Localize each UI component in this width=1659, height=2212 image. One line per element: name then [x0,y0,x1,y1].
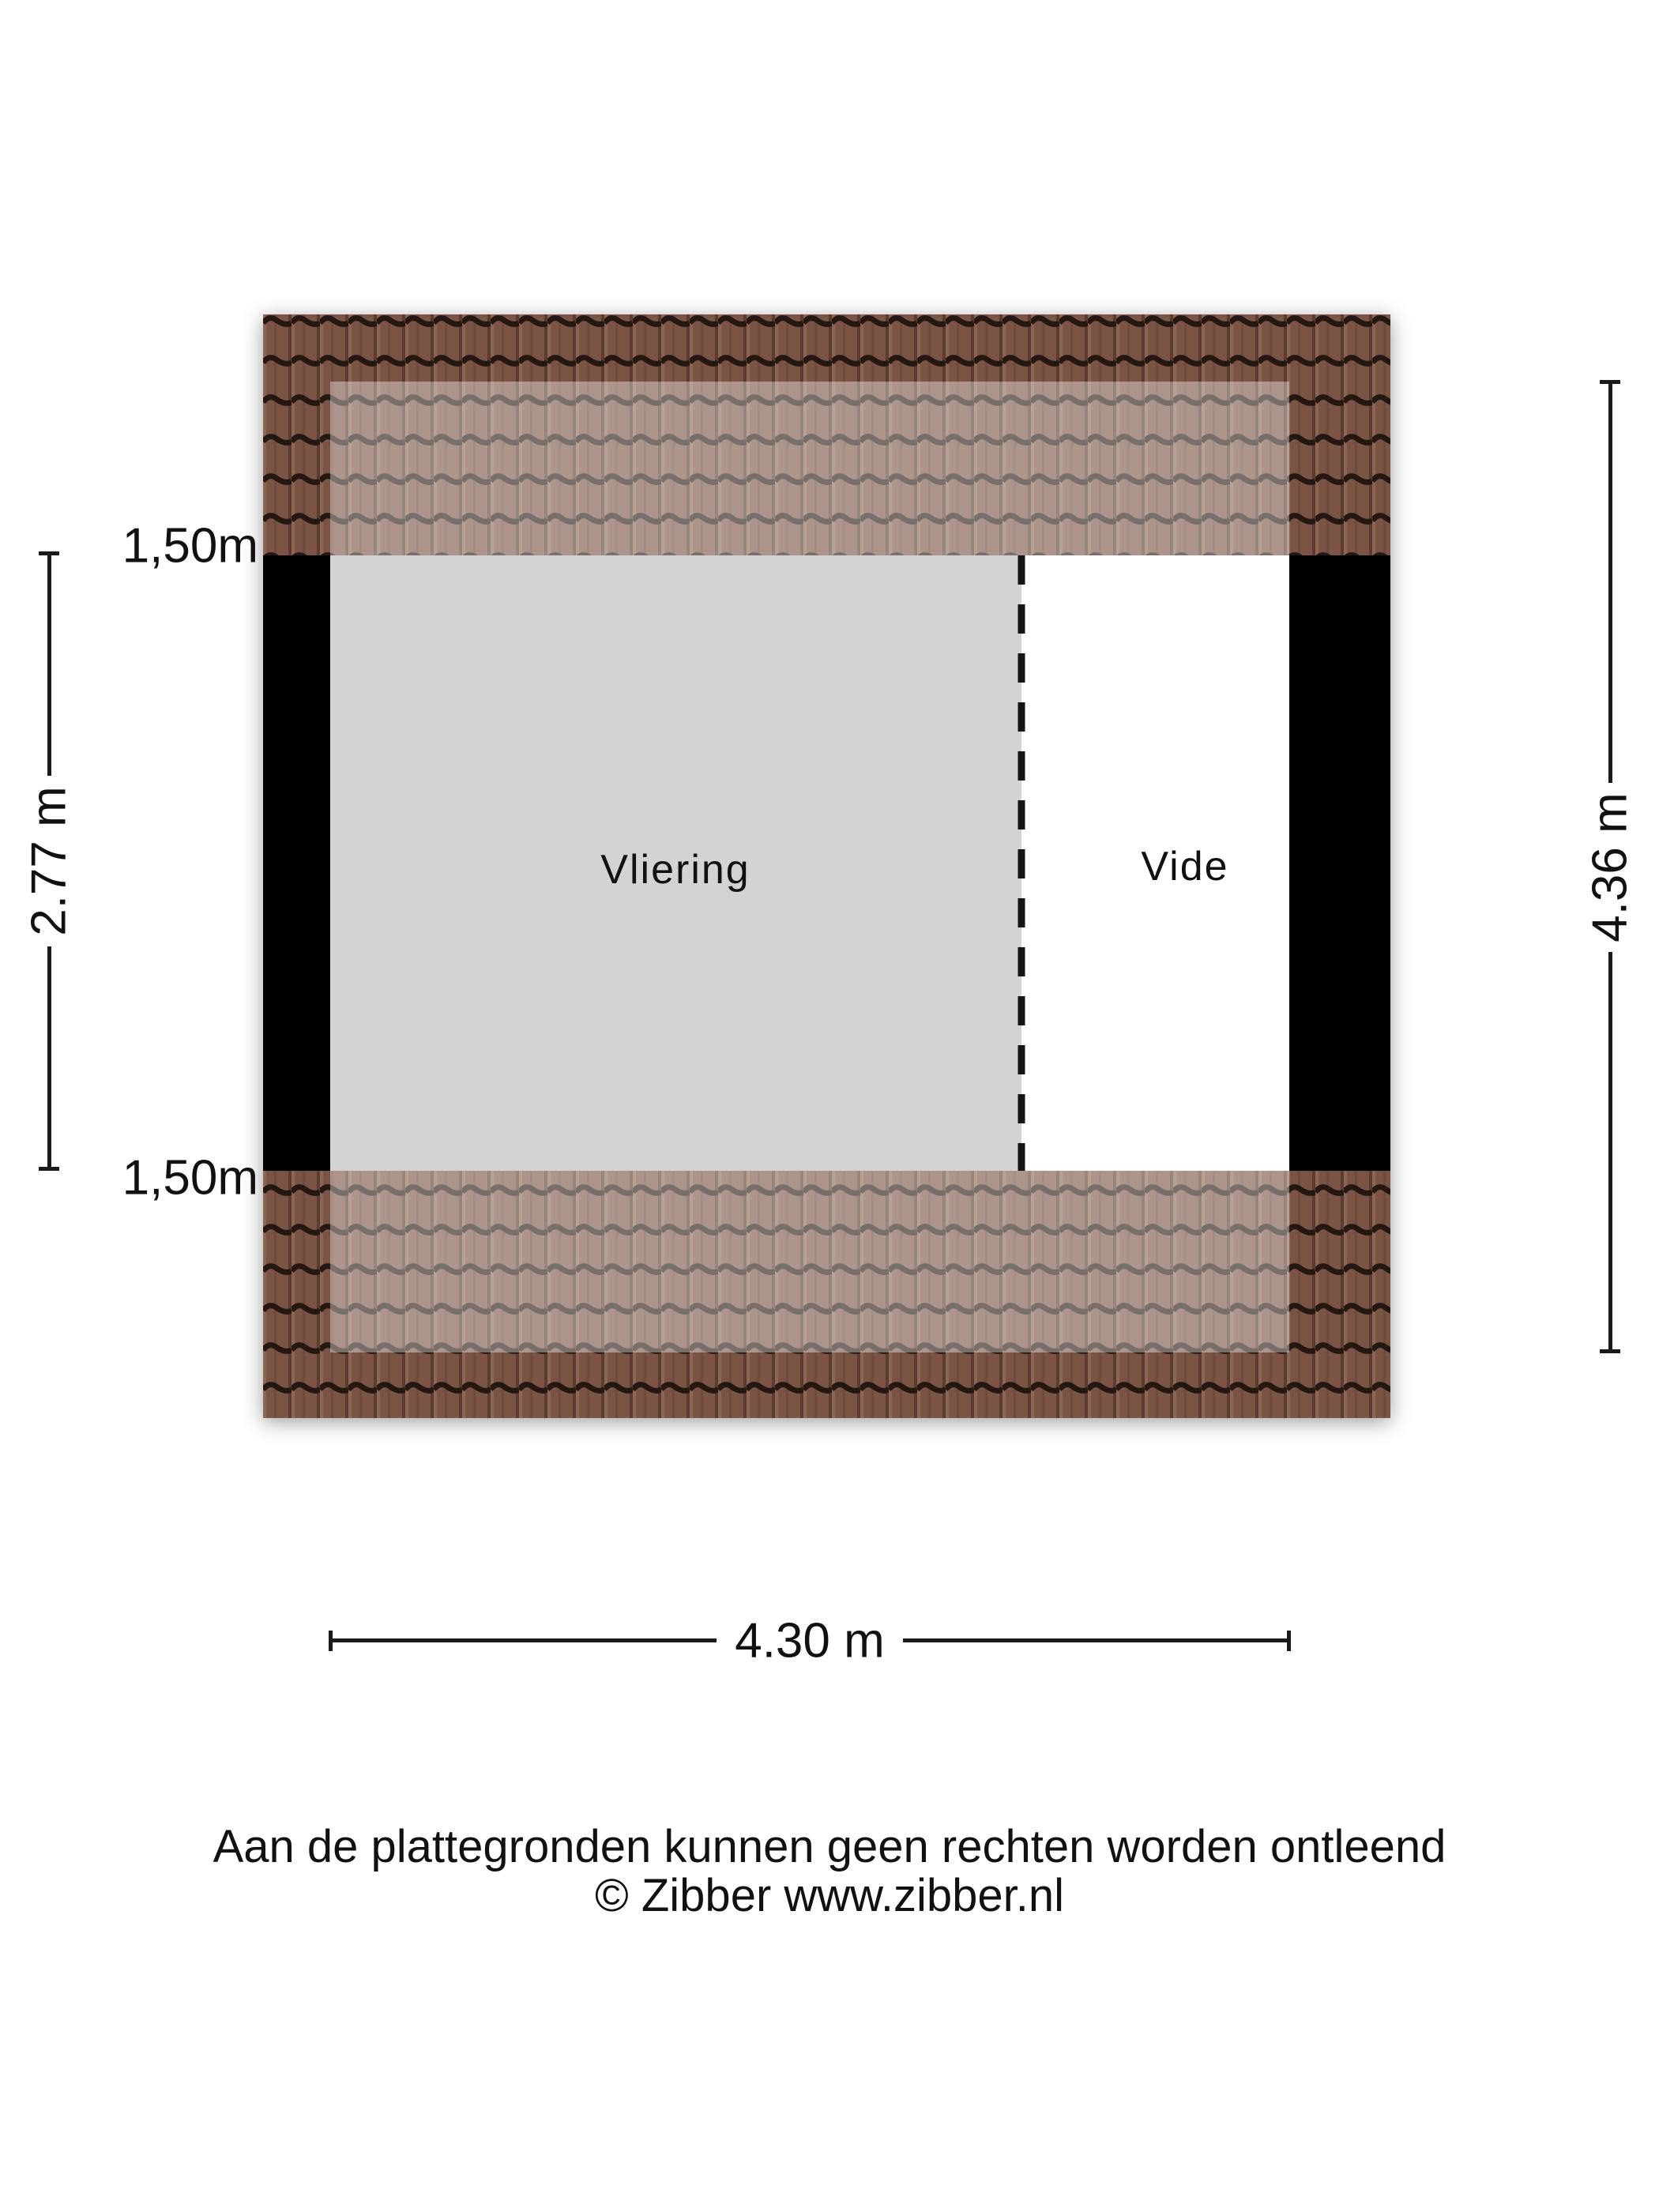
dimension-right-line-lower [1608,952,1612,1351]
room-label-vide: Vide [1141,843,1228,890]
clearance-label-top: 1,50m [122,518,258,574]
footer-copyright-line: © Zibber www.zibber.nl [0,1872,1659,1920]
dimension-bottom-tick-right [1287,1631,1291,1651]
dimension-right-tick-bottom [1600,1349,1620,1353]
wall-right [1289,555,1390,1171]
page: Vliering Vide 1,50m 1,50m 2.77 m 4.36 m … [0,0,1659,2212]
dimension-left-tick-bottom [39,1167,59,1171]
footer-disclaimer: Aan de plattegronden kunnen geen rechten… [0,1823,1659,1920]
dimension-right-label: 4.36 m [1582,792,1638,942]
dimension-bottom-line-left [331,1638,717,1642]
dimension-left-line-upper [47,555,51,776]
room-label-vliering: Vliering [600,846,750,893]
dimension-bottom-label: 4.30 m [735,1613,885,1669]
dimension-right-line-upper [1608,384,1612,783]
wall-left [263,555,330,1171]
dimension-left-line-lower [47,946,51,1169]
dimension-left-label: 2.77 m [21,786,77,936]
dimension-bottom-line-right [903,1638,1288,1642]
footer-disclaimer-line1: Aan de plattegronden kunnen geen rechten… [0,1823,1659,1872]
clearance-label-bottom: 1,50m [122,1150,258,1206]
